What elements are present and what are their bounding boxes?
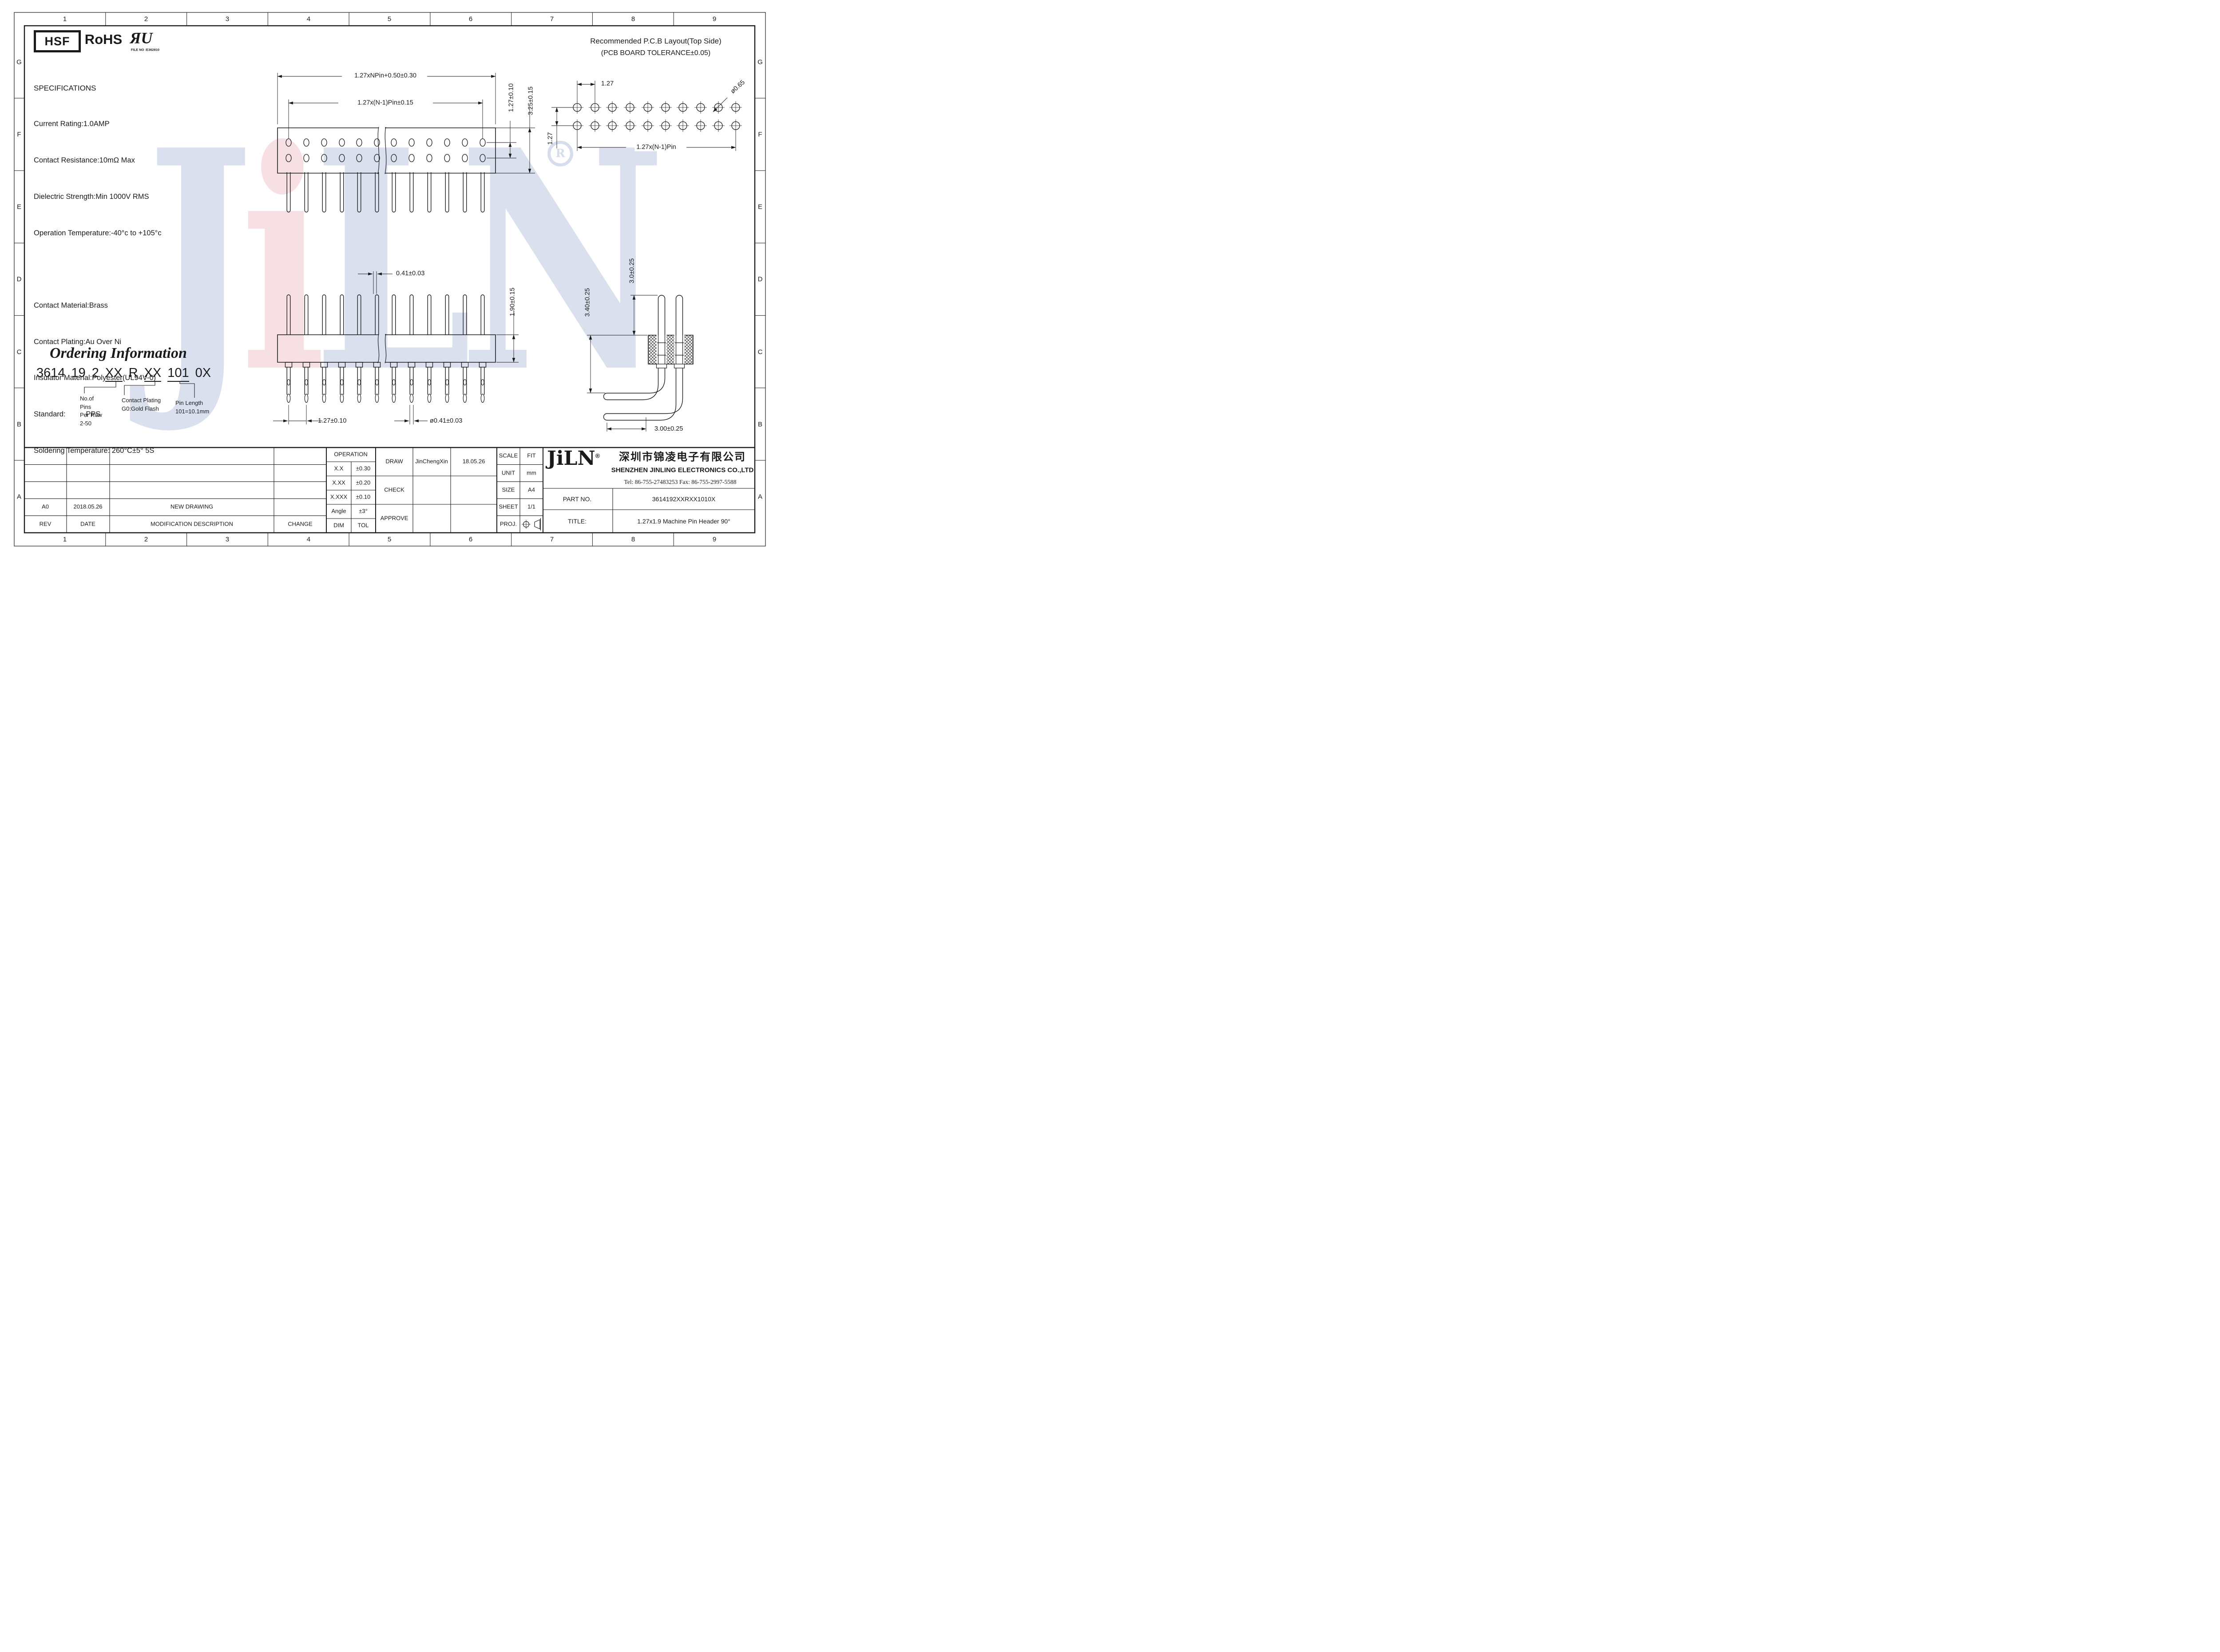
size-label: SIZE [502, 487, 515, 494]
spec-line: Operation Temperature:-40°c to +105°c [34, 227, 162, 239]
zone-col: 3 [226, 15, 229, 23]
tol-val: ±0.10 [356, 494, 370, 501]
company-name-en: SHENZHEN JINLING ELECTRONICS CO.,LTD [611, 466, 754, 474]
projection-symbol [522, 518, 541, 531]
zone-col: 6 [469, 535, 472, 543]
front-height-dim: 3.25±0.15 [527, 87, 535, 115]
registered-mark: ® [595, 452, 600, 459]
zone-row: D [17, 275, 22, 283]
approve-label: APPROVE [381, 515, 408, 522]
side-body-height-dim: 1.90±0.15 [509, 288, 517, 316]
size-value: A4 [528, 487, 535, 494]
pcb-layout-title: Recommended P.C.B Layout(Top Side) [590, 37, 721, 46]
zone-row: G [757, 58, 763, 66]
zone-col: 9 [713, 15, 716, 23]
zone-col: 8 [631, 535, 635, 543]
tol-dim: DIM [333, 523, 344, 529]
ordering-title: Ordering Information [50, 345, 187, 362]
callout-line: Pins [80, 403, 102, 412]
code-seg: 0X [195, 366, 211, 382]
right-lead-length-dim: 3.00±0.25 [654, 425, 683, 433]
company-logo: JiLN® [547, 448, 600, 470]
tol-dim: X.XXX [330, 494, 347, 501]
tol-dim: X.XX [332, 480, 345, 487]
zone-row: B [758, 420, 762, 428]
zone-row: E [17, 203, 21, 210]
front-row-pitch-dim: 1.27±0.10 [508, 83, 515, 112]
zone-col: 1 [63, 535, 67, 543]
side-view [273, 271, 519, 424]
zone-row: A [17, 493, 21, 500]
sheet-label: SHEET [499, 504, 518, 511]
draw-label: DRAW [385, 459, 403, 465]
callout-length: Pin Length 101=10.1mm [175, 399, 209, 416]
unit-value: mm [527, 470, 536, 477]
tol-val: ±3° [359, 508, 368, 515]
zone-row: F [17, 131, 21, 138]
zone-row: G [16, 58, 22, 66]
code-seg: 101 [167, 366, 189, 382]
code-seg: 2 [92, 366, 99, 382]
zone-col: 4 [307, 535, 310, 543]
zone-row: C [758, 348, 763, 356]
pcb-pitch-y-dim: 1.27 [547, 132, 555, 145]
front-span-dim: 1.27x(N-1)Pin±0.15 [356, 99, 415, 107]
tol-dim: Angle [331, 508, 346, 515]
tol-val: ±0.30 [356, 466, 370, 472]
draw-date: 18.05.26 [463, 459, 485, 465]
zone-col: 4 [307, 15, 310, 23]
callout-line: Contact Plating [122, 396, 161, 405]
rev-header: DATE [80, 521, 95, 528]
rohs-logo: RoHS [85, 32, 122, 48]
code-seg: XX [105, 366, 123, 382]
zone-col: 7 [550, 15, 554, 23]
part-no-label: PART NO. [563, 495, 592, 503]
ordering-code: 3614 19 2 XX R XX 101 0X [36, 366, 211, 382]
rev-header: MODIFICATION DESCRIPTION [151, 521, 233, 528]
spec-line: Dielectric Strength:Min 1000V RMS [34, 191, 162, 203]
front-overall-dim: 1.27xNPin+0.50±0.30 [353, 72, 418, 80]
callout-line: No.of [80, 395, 102, 403]
rev-date: 2018.05.26 [73, 504, 102, 511]
front-view [277, 73, 535, 212]
code-seg: R [129, 366, 138, 382]
right-angle-view [587, 295, 693, 432]
drawing-sheet: JiLN R [0, 0, 779, 551]
pcb-layout-subtitle: (PCB BOARD TOLERANCE±0.05) [601, 49, 710, 57]
part-no-value: 3614192XXRXX1010X [652, 495, 715, 503]
callout-pins: No.of Pins Per Row 2-50 [80, 395, 102, 428]
sheet-value: 1/1 [527, 504, 535, 511]
specifications-title: SPECIFICATIONS [34, 82, 162, 94]
zone-row: E [758, 203, 762, 210]
spec-line: Current Rating:1.0AMP [34, 118, 162, 130]
code-seg: XX [144, 366, 162, 382]
side-pin-dia-dim: ø0.41±0.03 [430, 417, 462, 425]
ul-file-number: FILE NO :E362810 [131, 48, 159, 52]
code-seg: 3614 [36, 366, 65, 382]
ul-logo-icon: ЯU [130, 29, 153, 47]
right-top-pin-dim: 3.0±0.25 [629, 258, 636, 283]
callout-line: 2-50 [80, 420, 102, 428]
title-label: TITLE: [568, 518, 587, 525]
rev-value: A0 [42, 504, 49, 511]
zone-row: D [758, 275, 763, 283]
draw-by: JinChengXin [415, 459, 448, 465]
zone-row: B [17, 420, 21, 428]
zone-col: 5 [388, 15, 391, 23]
side-pin-width-dim: 0.41±0.03 [396, 270, 424, 277]
zone-col: 9 [713, 535, 716, 543]
zone-col: 8 [631, 15, 635, 23]
right-total-height-dim: 3.40±0.25 [584, 288, 592, 317]
scale-value: FIT [527, 453, 536, 460]
hsf-logo: HSF [34, 30, 81, 52]
rev-header: REV [40, 521, 52, 528]
callout-plating: Contact Plating G0:Gold Flash [122, 396, 161, 413]
pcb-layout [551, 81, 742, 151]
zone-row: F [758, 131, 762, 138]
callout-line: Per Row [80, 411, 102, 420]
check-label: CHECK [384, 487, 404, 494]
hsf-text: HSF [45, 35, 70, 48]
company-contact: Tel: 86-755-27483253 Fax: 86-755-2997-55… [624, 479, 737, 486]
rev-description: NEW DRAWING [170, 504, 213, 511]
callout-line: G0:Gold Flash [122, 405, 161, 413]
zone-row: A [758, 493, 762, 500]
zone-col: 2 [144, 15, 148, 23]
callout-line: Pin Length [175, 399, 209, 408]
zone-row: C [17, 348, 22, 356]
zone-col: 1 [63, 15, 67, 23]
tolerance-title: OPERATION [334, 452, 368, 458]
code-seg: 19 [71, 366, 86, 382]
company-logo-text: JiLN [547, 447, 595, 470]
zone-col: 3 [226, 535, 229, 543]
zone-col: 5 [388, 535, 391, 543]
tol-val: TOL [357, 523, 369, 529]
rev-header: CHANGE [288, 521, 313, 528]
side-pitch-dim: 1.27±0.10 [318, 417, 346, 425]
unit-label: UNIT [502, 470, 515, 477]
tol-val: ±0.20 [356, 480, 370, 487]
proj-label: PROJ. [500, 521, 517, 528]
spec-line: Soldering Temperature: 260°C±5° 5S [34, 445, 162, 457]
zone-col: 2 [144, 535, 148, 543]
spec-line: Contact Material:Brass [34, 300, 162, 312]
drawing-title: 1.27x1.9 Machine Pin Header 90° [637, 518, 730, 525]
tol-dim: X.X [334, 466, 344, 472]
spec-line: Contact Resistance:10mΩ Max [34, 155, 162, 166]
scale-label: SCALE [499, 453, 518, 460]
pcb-span-dim: 1.27x(N-1)Pin [634, 144, 678, 151]
zone-col: 6 [469, 15, 472, 23]
callout-line: 101=10.1mm [175, 408, 209, 416]
company-name-cn: 深圳市锦凌电子有限公司 [619, 451, 746, 464]
pcb-pitch-x-dim: 1.27 [601, 80, 614, 88]
zone-col: 7 [550, 535, 554, 543]
